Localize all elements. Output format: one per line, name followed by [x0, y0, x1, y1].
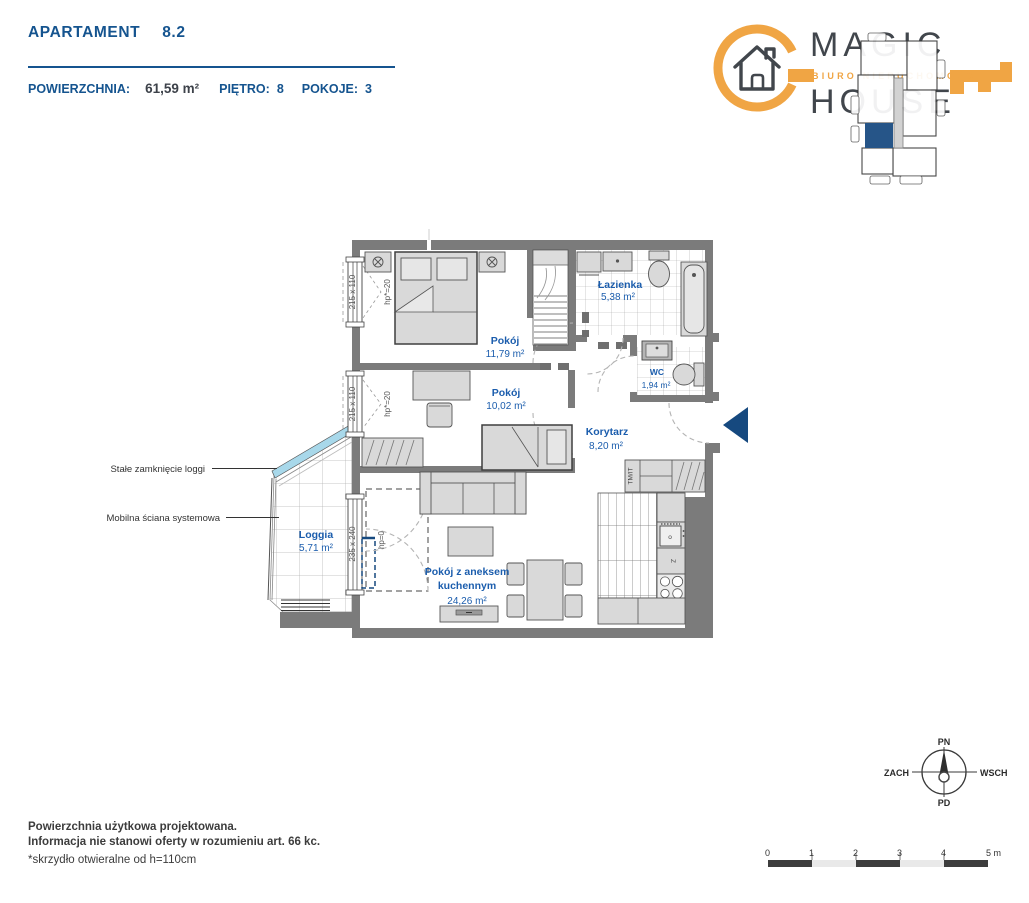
scale-tick-1: 1: [809, 848, 814, 858]
living-name-line2: kuchennym: [438, 580, 496, 592]
staircase-shaft: [533, 250, 568, 345]
loggia-floor: [270, 430, 352, 612]
coffee-table: [448, 527, 493, 556]
room2-name: Pokój: [492, 387, 521, 399]
window-size-label: 215 x 110: [348, 274, 357, 309]
sofa: [420, 472, 526, 514]
living-name-line1: Pokój z aneksem: [425, 566, 510, 578]
window-hp-label: hp*=20: [383, 391, 392, 417]
building-key-plan: [851, 33, 945, 184]
dining-table: [527, 560, 563, 620]
kitchen-floor: [598, 493, 657, 598]
wardrobe: [362, 438, 423, 467]
mobile-wall-symbol: [362, 538, 375, 588]
wc-sink: [642, 341, 672, 360]
entrance-door-arc: [669, 403, 709, 443]
corridor-wardrobe: TM/IT: [625, 460, 705, 492]
scale-tick-2: 2: [853, 848, 858, 858]
compass-west: ZACH: [884, 768, 909, 778]
loggia-door-size-label: 235 x 240: [348, 526, 357, 562]
dining-set: [507, 560, 582, 620]
mobile-wall-markers: [362, 489, 428, 591]
pillow: [401, 258, 431, 280]
wc-name: WC: [650, 367, 664, 377]
wall-axis-break: [427, 240, 431, 250]
chair: [565, 563, 582, 585]
chair: [427, 403, 452, 427]
scale-tick-3: 3: [897, 848, 902, 858]
room2-area: 10,02 m²: [486, 401, 526, 412]
bedroom-area: 11,79 m²: [486, 349, 525, 360]
wc-door-arc: [598, 356, 634, 392]
bathroom-name: Łazienka: [598, 279, 643, 291]
chair: [507, 563, 524, 585]
entrance-arrow-icon: [723, 407, 748, 443]
loggia-door-hp-label: hp=0: [377, 530, 386, 549]
living-area: 24,26 m²: [447, 596, 487, 607]
scale-tick-0: 0: [765, 848, 770, 858]
washing-machine: [577, 252, 601, 272]
tv-stand: [440, 606, 498, 622]
chair: [565, 595, 582, 617]
glass-callout-label: Stałe zamknięcie loggi: [110, 464, 205, 475]
house-icon: [735, 47, 779, 89]
pillow: [437, 258, 467, 280]
loggia-area: 5,71 m²: [299, 543, 334, 554]
scale-tick-4: 4: [941, 848, 946, 858]
corridor-area: 8,20 m²: [589, 441, 624, 452]
room2-furniture: [362, 371, 572, 470]
bathtub: [681, 262, 707, 336]
wc-area: 1,94 m²: [642, 380, 671, 390]
floor-plan: o Z TM/IT: [106, 229, 748, 638]
logo-ring-icon: [718, 29, 792, 107]
bedroom-name: Pokój: [491, 335, 520, 347]
desk: [413, 371, 470, 400]
chair: [507, 595, 524, 617]
sink-label: Z: [669, 559, 676, 563]
pillow: [547, 430, 566, 464]
oven: o: [657, 522, 685, 548]
scale-tick-5: 5 m: [986, 848, 1001, 858]
window-size-label: 215 x 110: [348, 386, 357, 421]
window-hp-label: hp*=20: [383, 279, 392, 305]
key-plan-corridor: [894, 78, 903, 148]
callouts: Stałe zamknięcie loggi Mobilna ściana sy…: [106, 464, 279, 524]
wc-toilet: [673, 363, 704, 386]
compass-rose: PN WSCH PD ZACH: [884, 737, 1008, 808]
corridor-name: Korytarz: [586, 426, 629, 438]
compass-south: PD: [938, 798, 951, 808]
compass-east: WSCH: [980, 768, 1008, 778]
cooktop: [657, 574, 685, 600]
loggia-name: Loggia: [299, 529, 334, 541]
wardrobe-label: TM/IT: [628, 467, 635, 484]
kitchen-counter: [657, 493, 685, 522]
bathroom-sink: [603, 252, 632, 271]
bathroom-area: 5,38 m²: [601, 292, 636, 303]
oven-label: o: [668, 534, 672, 541]
kitchen-counter: [598, 598, 685, 624]
key-plan-highlighted-unit: [865, 123, 893, 148]
living-room-furniture: [420, 472, 582, 622]
floor-plan-canvas: MAGIC BIURO NIERUCHOMOŚCI HOUSE: [0, 0, 1029, 903]
mobile-wall-callout-label: Mobilna ściana systemowa: [106, 513, 220, 524]
toilet: [649, 251, 670, 287]
compass-north: PN: [938, 737, 951, 747]
scale-bar: 0 1 2 3 4 5 m: [765, 848, 1001, 867]
